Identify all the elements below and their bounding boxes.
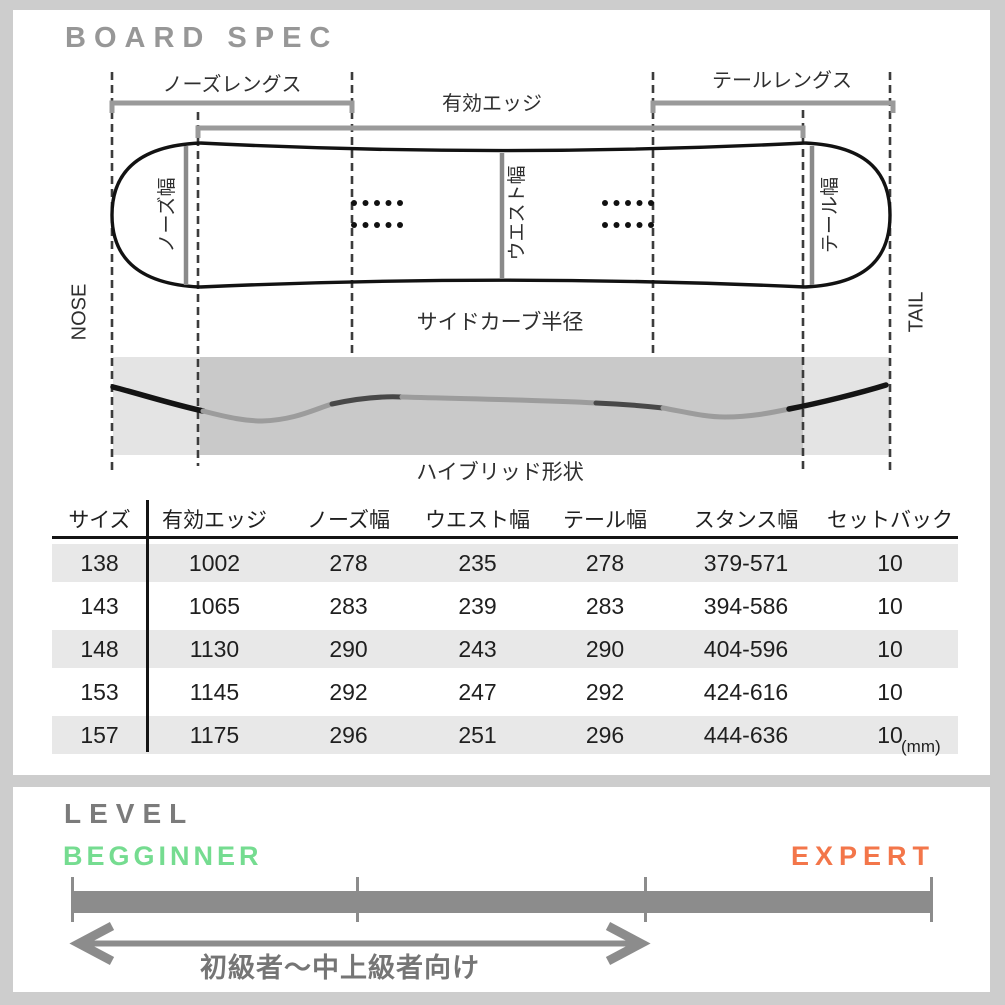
tail-end-label: TAIL xyxy=(905,292,927,333)
scale-tick xyxy=(356,877,359,922)
table-header-row: サイズ 有効エッジ ノーズ幅 ウエスト幅 テール幅 スタンス幅 セットバック xyxy=(52,502,958,539)
waist-width-label: ウエスト幅 xyxy=(506,165,528,260)
sidecut-radius-label: サイドカーブ半径 xyxy=(417,311,584,334)
width-lines xyxy=(186,146,812,285)
spec-table: サイズ 有効エッジ ノーズ幅 ウエスト幅 テール幅 スタンス幅 セットバック 1… xyxy=(52,497,958,759)
nose-width-label: ノーズ幅 xyxy=(156,177,178,252)
effective-edge-bracket xyxy=(198,128,803,138)
camber-shape-label: ハイブリッド形状 xyxy=(416,461,584,484)
col-nose: ノーズ幅 xyxy=(282,502,415,539)
level-title: LEVEL xyxy=(64,798,194,830)
table-row: 1571175296251296444-63610 xyxy=(52,716,958,754)
col-setback: セットバック xyxy=(822,502,958,539)
col-edge: 有効エッジ xyxy=(147,502,282,539)
table-row: 1381002278235278379-57110 xyxy=(52,544,958,582)
scale-tick xyxy=(71,877,74,922)
expert-label: EXPERT xyxy=(791,841,935,872)
table-row: 1431065283239283394-58610 xyxy=(52,587,958,625)
col-waist: ウエスト幅 xyxy=(415,502,540,539)
tail-length-bracket xyxy=(653,103,893,113)
table-row: 1481130290243290404-59610 xyxy=(52,630,958,668)
level-scale-bar xyxy=(72,891,933,913)
level-range-note: 初級者～中上級者向け xyxy=(200,946,480,985)
camber-band xyxy=(113,357,890,455)
scale-tick xyxy=(644,877,647,922)
col-stance: スタンス幅 xyxy=(670,502,822,539)
col-tail: テール幅 xyxy=(540,502,670,539)
tail-width-label: テール幅 xyxy=(819,177,841,253)
nose-length-bracket xyxy=(112,103,352,113)
table-column-divider xyxy=(146,500,149,752)
nose-length-label: ノーズレングス xyxy=(163,73,302,96)
scale-tick xyxy=(930,877,933,922)
unit-note: (mm) xyxy=(901,737,941,757)
beginner-label: BEGGINNER xyxy=(63,841,263,872)
board-spec-sheet: BOARD SPEC xyxy=(0,0,1005,1005)
table-row: 1531145292247292424-61610 xyxy=(52,673,958,711)
tail-length-label: テールレングス xyxy=(712,69,852,92)
board-diagram: ノーズレングス 有効エッジ テールレングス サイドカーブ半径 ハイブリッド形状 … xyxy=(0,0,1005,500)
nose-end-label: NOSE xyxy=(68,284,90,341)
effective-edge-label: 有効エッジ xyxy=(442,92,542,115)
col-size: サイズ xyxy=(52,502,147,539)
